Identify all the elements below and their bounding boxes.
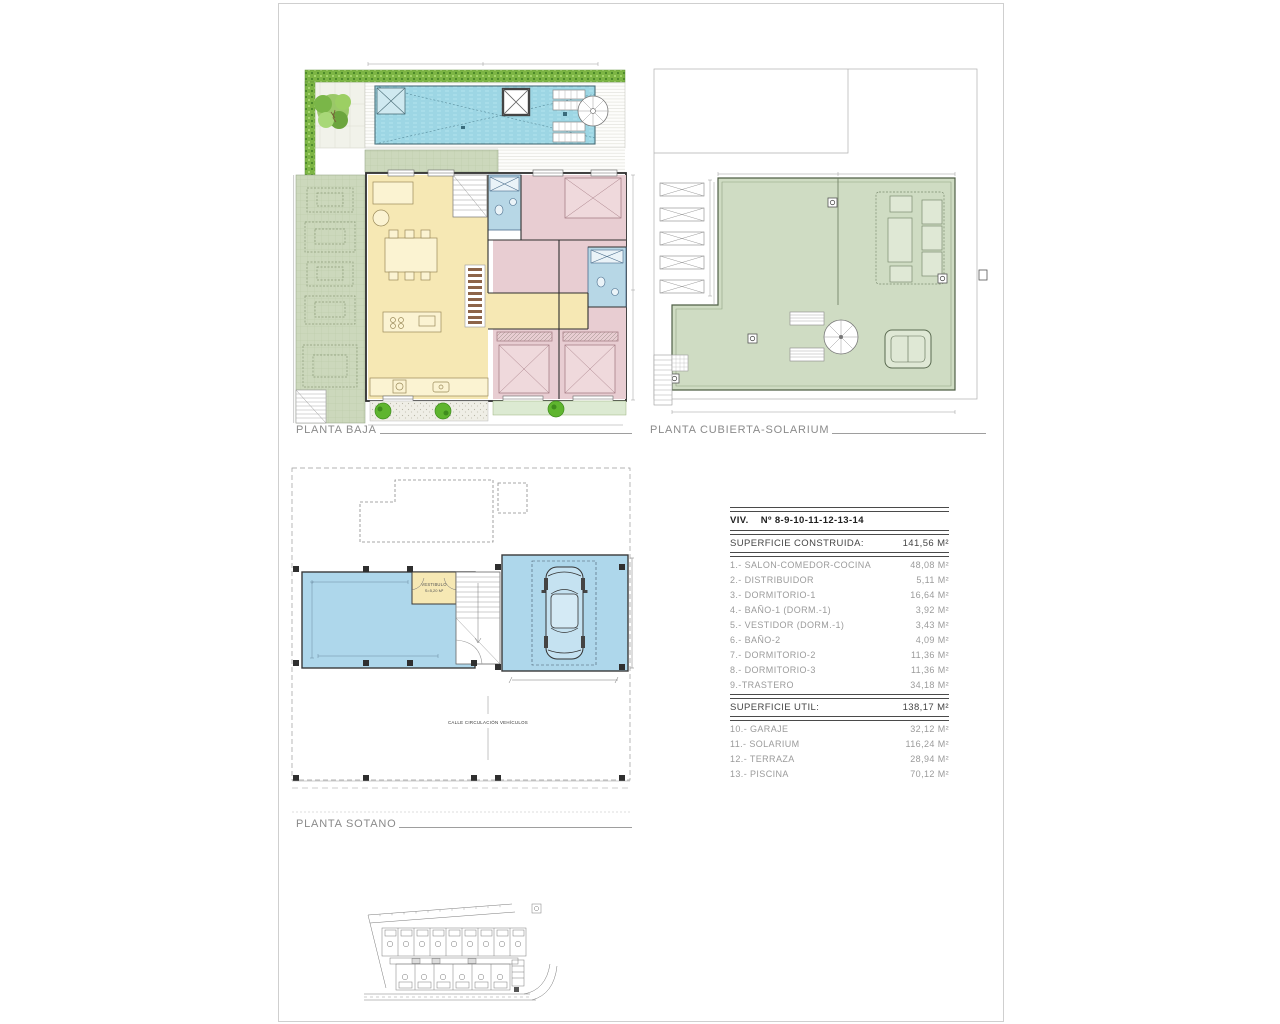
plot-number-circles [387, 941, 521, 980]
unit-header-value: Nº 8-9-10-11-12-13-14 [761, 513, 864, 529]
useful-label: SUPERFICIE UTIL: [730, 700, 819, 715]
table-rule [730, 716, 949, 721]
room-row: 9.-TRASTERO34,18 M² [730, 678, 949, 693]
room-row: 2.- DISTRIBUIDOR5,11 M² [730, 573, 949, 588]
plan-planta-baja [293, 60, 638, 428]
skylight-icon [503, 89, 529, 115]
plan-label-text: PLANTA BAJA [296, 424, 377, 436]
street-lines [292, 781, 630, 812]
constructed-value: 141,56 M² [903, 536, 949, 551]
pergola-rafters [660, 180, 712, 296]
plan-label-text: PLANTA CUBIERTA-SOLARIUM [650, 424, 829, 436]
tree-icon [314, 94, 351, 129]
basement-stairs-icon [456, 572, 500, 664]
room-row: 1.- SALON-COMEDOR-COCINA48,08 M² [730, 558, 949, 573]
round-table-icon [824, 320, 858, 354]
room-row: 8.- DORMITORIO-311,36 M² [730, 663, 949, 678]
vestibulo-label: VESTIBULO [421, 582, 447, 587]
label-rule [399, 827, 632, 828]
spiral-stair-icon [578, 96, 608, 126]
drawing-sheet: PLANTA BAJA [0, 0, 1280, 1024]
exterior-row: 10.- GARAJE32,12 M² [730, 722, 949, 737]
room-row: 4.- BAÑO-1 (DORM.-1)3,92 M² [730, 603, 949, 618]
side-garden [296, 175, 365, 423]
calle-label: CALLE CIRCULACIÓN VEHÍCULOS [448, 720, 528, 725]
table-rule [730, 530, 949, 535]
entrance [370, 401, 626, 421]
deck-lower [498, 148, 625, 173]
label-planta-baja: PLANTA BAJA [296, 424, 632, 436]
plots-bottom-row [396, 964, 510, 990]
plan-planta-cubierta [648, 60, 988, 428]
room-row: 3.- DORMITORIO-116,64 M² [730, 588, 949, 603]
site-road-curve [524, 964, 557, 1000]
unit-header-row: VIV. Nº 8-9-10-11-12-13-14 [730, 513, 949, 529]
site-road-bottom [364, 994, 536, 1000]
table-rule [730, 694, 949, 699]
constructed-row: SUPERFICIE CONSTRUIDA: 141,56 M² [730, 536, 949, 551]
constructed-label: SUPERFICIE CONSTRUIDA: [730, 536, 864, 551]
plan-planta-sotano: VESTIBULO S=5,20 M² [278, 458, 638, 830]
car-icon [542, 567, 588, 659]
table-rule [730, 552, 949, 557]
vestibule: VESTIBULO S=5,20 M² [412, 572, 456, 604]
plots-top-row [382, 928, 526, 956]
site-inner-street [390, 958, 518, 964]
table-rule [730, 507, 949, 512]
site-roads-top [368, 904, 515, 988]
corridor-area [488, 293, 588, 329]
label-rule [832, 433, 986, 434]
label-planta-sotano: PLANTA SOTANO [296, 818, 632, 830]
useful-value: 138,17 M² [903, 700, 949, 715]
areas-table: VIV. Nº 8-9-10-11-12-13-14 SUPERFICIE CO… [730, 506, 949, 782]
site-parking [512, 960, 524, 992]
site-roundabout [532, 904, 541, 913]
useful-row: SUPERFICIE UTIL: 138,17 M² [730, 700, 949, 715]
label-rule [380, 433, 632, 434]
floor-above-outline [360, 480, 527, 542]
label-planta-cubierta: PLANTA CUBIERTA-SOLARIUM [650, 424, 986, 436]
exterior-row: 11.- SOLARIUM116,24 M² [730, 737, 949, 752]
room-row: 5.- VESTIDOR (DORM.-1)3,43 M² [730, 618, 949, 633]
unit-header-label: VIV. [730, 513, 749, 529]
site-plan [360, 898, 560, 1010]
room-row: 7.- DORMITORIO-211,36 M² [730, 648, 949, 663]
exterior-row: 13.- PISCINA70,12 M² [730, 767, 949, 782]
room-row: 6.- BAÑO-24,09 M² [730, 633, 949, 648]
vestibulo-area: S=5,20 M² [425, 588, 444, 593]
bench-sofa-icon [885, 330, 931, 368]
plan-label-text: PLANTA SOTANO [296, 818, 396, 830]
exterior-row: 12.- TERRAZA28,94 M² [730, 752, 949, 767]
garage [502, 555, 628, 671]
street-label-group: CALLE CIRCULACIÓN VEHÍCULOS [448, 696, 528, 760]
terrace-band [365, 150, 498, 172]
